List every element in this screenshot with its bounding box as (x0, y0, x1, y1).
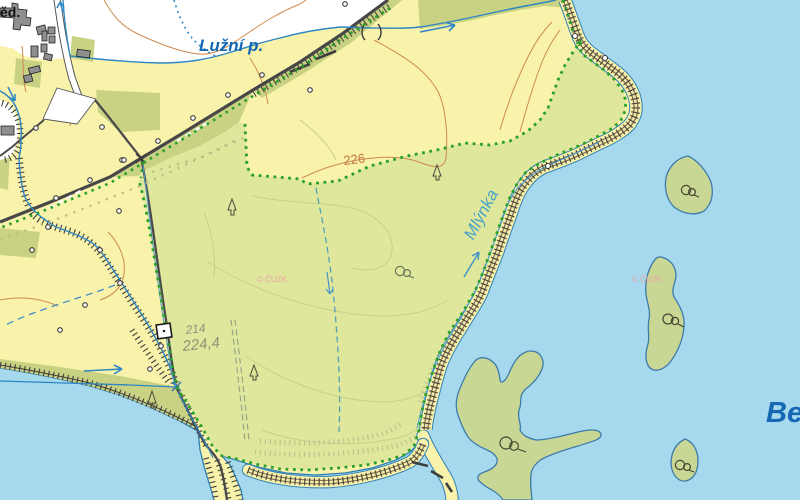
svg-text:226: 226 (343, 150, 366, 168)
svg-text:ěd.: ěd. (0, 4, 20, 20)
svg-text:© ČUZK: © ČUZK (632, 275, 663, 284)
svg-text:© ČUZK: © ČUZK (257, 275, 288, 284)
svg-text:214: 214 (184, 321, 207, 337)
svg-text:Bez: Bez (766, 397, 800, 429)
svg-text:Lužní p.: Lužní p. (199, 36, 263, 55)
